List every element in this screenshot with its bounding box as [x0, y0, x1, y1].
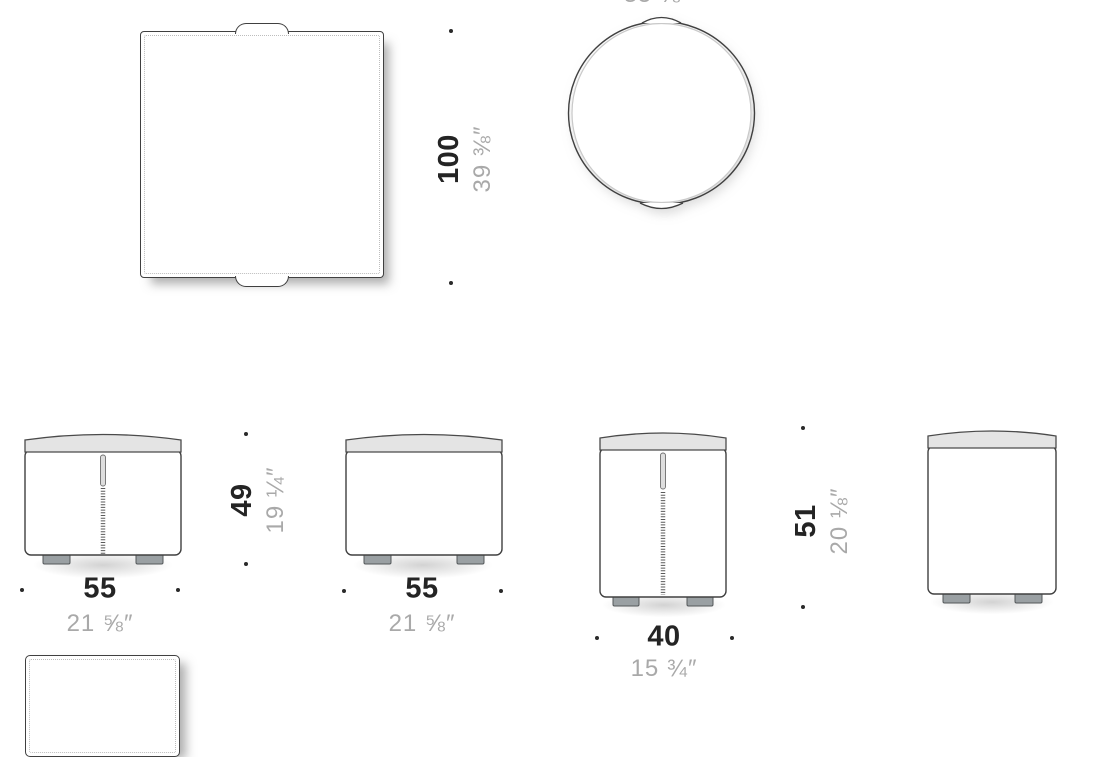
pouf-small-height-dimension: 49 19 ¼″: [228, 467, 288, 534]
stitch-line: [144, 35, 380, 274]
dim-label-inch: 39 ⅜″: [471, 126, 495, 193]
extent-dot: [176, 588, 180, 592]
extent-dot: [730, 636, 734, 640]
pouf-side-tall: [926, 426, 1058, 606]
dim-label-cm: 55: [83, 575, 116, 604]
extent-dot: [20, 588, 24, 592]
extent-dot: [499, 589, 503, 593]
dim-label-cm: 40: [647, 623, 680, 652]
seat-stitch-circle: [572, 24, 751, 203]
pouf-body: [928, 446, 1056, 594]
dim-label-cm: 49: [228, 467, 257, 534]
round-pouf-top-view: [560, 10, 764, 216]
spec-sheet: { "colors": { "outline": "#404040", "sti…: [0, 0, 1110, 680]
extent-dot: [449, 281, 453, 285]
dim-label-inch: 20 ⅛″: [828, 488, 852, 555]
pouf-side-small: [344, 428, 504, 566]
handle-arc-bottom: [640, 203, 683, 209]
square-pouf-top-view: [140, 31, 384, 278]
circle-dim-label-clipped: 35 ⅜″: [624, 0, 691, 9]
pouf-front-tall: [598, 428, 728, 608]
pouf-front-small: [23, 428, 183, 566]
dim-label-cm: 51: [792, 488, 821, 555]
top-band: [346, 435, 502, 453]
extent-dot: [244, 562, 248, 566]
zipper-pull: [101, 455, 106, 486]
pouf-tall-height-dimension: 51 20 ⅛″: [792, 488, 852, 555]
handle-arc-bottom: [235, 276, 289, 287]
dim-label-inch: 15 ¾″: [631, 657, 698, 681]
handle-arc-top: [642, 18, 681, 24]
pouf-body: [346, 450, 502, 555]
extent-dot: [449, 29, 453, 33]
dim-label-inch: 19 ¼″: [264, 467, 288, 534]
handle-arc-top: [235, 23, 289, 34]
square-height-dimension: 100 39 ⅜″: [435, 126, 495, 193]
extent-dot: [595, 636, 599, 640]
top-band: [25, 435, 181, 453]
top-band: [928, 431, 1056, 448]
dim-label-inch: 21 ⅝″: [67, 612, 134, 636]
square-pouf-top-view-clipped: [25, 655, 180, 757]
zipper-pull: [661, 453, 666, 489]
stitch-line: [29, 659, 176, 753]
dim-label-cm: 55: [405, 575, 438, 604]
extent-dot: [342, 589, 346, 593]
dim-label-inch: 21 ⅝″: [389, 612, 456, 636]
extent-dot: [801, 426, 805, 430]
dim-label-cm: 100: [435, 126, 464, 193]
extent-dot: [244, 432, 248, 436]
top-band: [600, 433, 726, 450]
extent-dot: [801, 605, 805, 609]
